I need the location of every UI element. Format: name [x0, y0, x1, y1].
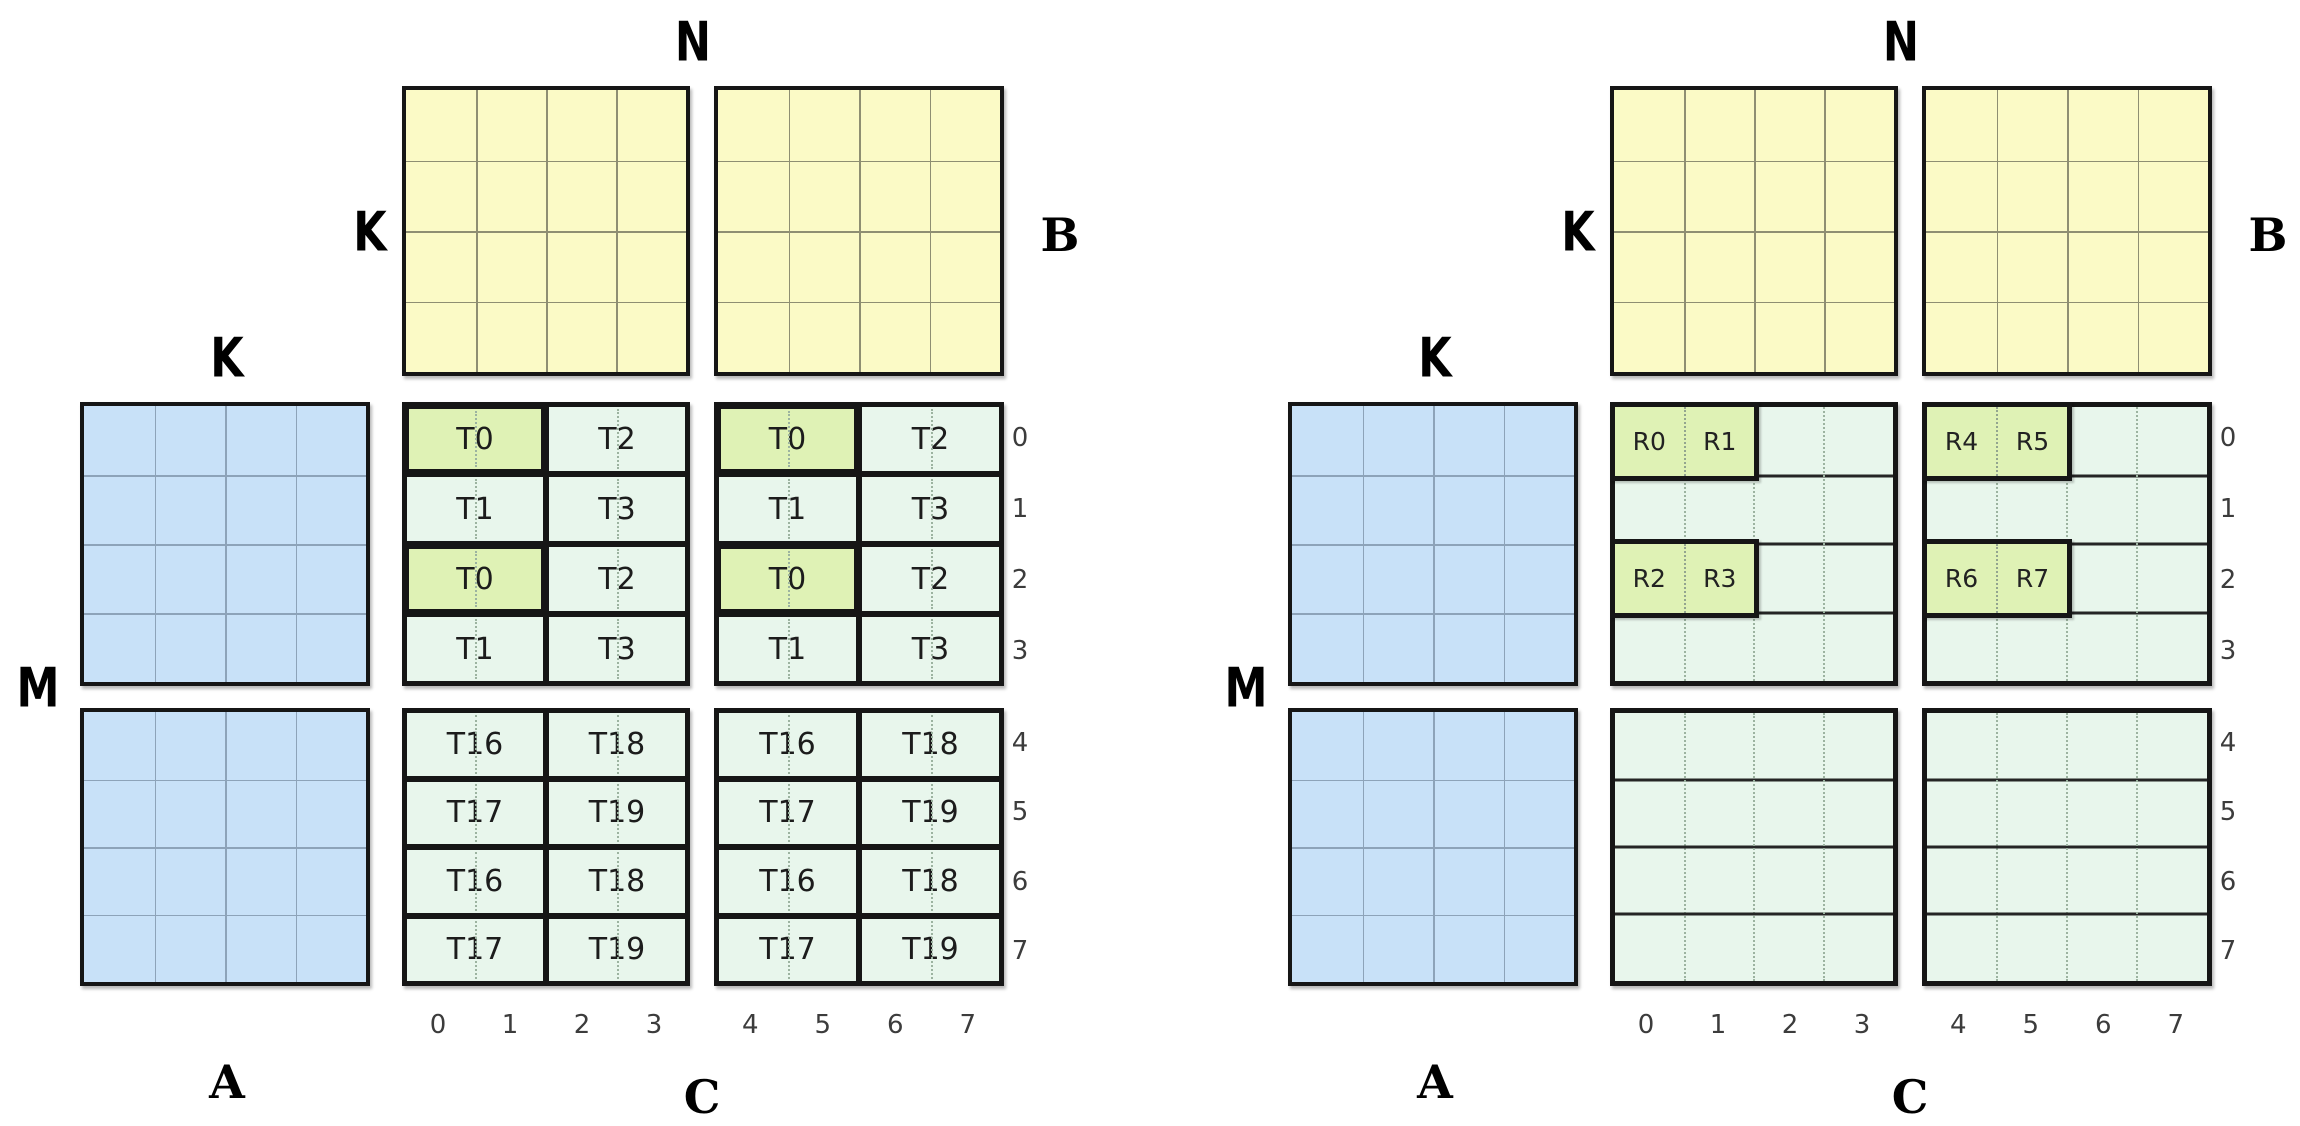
register-label: R1: [1686, 407, 1755, 476]
matrix-c-block: [1610, 708, 1898, 986]
tile-label: T1: [769, 492, 806, 527]
column-dotted-line: [1823, 407, 1825, 681]
row-index-label: 5: [2220, 797, 2237, 827]
row-index-label: 3: [2220, 636, 2237, 666]
tile-cell: T3: [859, 614, 1002, 684]
figure-thread-tiling: N K B K M A C T0T2T1T3T0T2T1T3T16T18T17T…: [0, 0, 1150, 1126]
register-box: R4R5: [1922, 402, 2072, 481]
dim-label-k-of-b: K: [1561, 201, 1594, 264]
dim-label-m: M: [1225, 657, 1268, 720]
matrix-label-a: A: [1417, 1055, 1453, 1109]
register-box: R0R1: [1610, 402, 1759, 481]
matrix-c-block: T16T18T17T19T16T18T17T19: [714, 708, 1004, 986]
column-dotted-line: [2136, 407, 2138, 681]
tile-label: T18: [902, 864, 959, 899]
tile-label: T18: [902, 727, 959, 762]
tile-label: T17: [447, 932, 504, 967]
row-index-label: 6: [1012, 867, 1029, 897]
tile-cell: T17: [404, 916, 546, 985]
col-index-label: 6: [887, 1010, 904, 1040]
matrix-label-c: C: [1892, 1070, 1929, 1124]
register-label: R2: [1615, 544, 1686, 613]
tile-cell: T19: [546, 916, 688, 985]
tile-label: T19: [589, 795, 646, 830]
tile-label: T19: [902, 795, 959, 830]
tile-cell: T18: [546, 710, 688, 779]
grid-line: [1292, 544, 1574, 546]
grid-line: [84, 613, 366, 615]
row-separator-line: [1927, 913, 2207, 916]
col-index-label: 7: [2167, 1010, 2184, 1040]
col-index-label: 1: [1710, 1010, 1727, 1040]
matrix-b-block: [714, 86, 1004, 376]
column-dotted-line: [1753, 713, 1755, 981]
col-index-label: 1: [502, 1010, 519, 1040]
grid-line: [1292, 847, 1574, 849]
row-index-label: 2: [1012, 565, 1029, 595]
grid-line: [1926, 231, 2208, 233]
grid-line: [1824, 90, 1826, 372]
col-index-label: 2: [574, 1010, 591, 1040]
tile-label: T16: [447, 727, 504, 762]
column-dotted-line: [1823, 713, 1825, 981]
tile-cell: T2: [546, 544, 688, 614]
tile-cell: T3: [546, 614, 688, 684]
matrix-c-block: T16T18T17T19T16T18T17T19: [402, 708, 690, 986]
grid-line: [1292, 915, 1574, 917]
row-index-label: 4: [1012, 728, 1029, 758]
tile-label: T2: [912, 562, 949, 597]
grid-line: [406, 231, 686, 233]
register-label: R5: [1998, 407, 2067, 476]
tile-label: T18: [589, 864, 646, 899]
tile-cell: T19: [859, 916, 1002, 985]
tile-cell: T1: [404, 474, 546, 544]
tile-label: T2: [598, 422, 635, 457]
dim-label-n: N: [1883, 11, 1919, 74]
tile-label: T0: [769, 422, 806, 457]
row-index-label: 0: [2220, 423, 2237, 453]
row-index-label: 3: [1012, 636, 1029, 666]
matrix-label-b: B: [2249, 208, 2288, 262]
col-index-label: 4: [742, 1010, 759, 1040]
grid-line: [1504, 712, 1506, 982]
row-index-label: 1: [2220, 494, 2237, 524]
tile-cell: T3: [859, 474, 1002, 544]
row-index-label: 1: [1012, 494, 1029, 524]
col-index-label: 3: [646, 1010, 663, 1040]
col-index-label: 2: [1782, 1010, 1799, 1040]
tile-cell: T18: [546, 847, 688, 916]
tile-cell: T3: [546, 474, 688, 544]
matrix-c-block: R4R5R6R7: [1922, 402, 2212, 686]
tile-cell: T16: [716, 710, 859, 779]
tile-cell: T19: [546, 779, 688, 848]
tile-label: T16: [759, 864, 816, 899]
dim-label-m: M: [17, 657, 60, 720]
tile-label: T16: [759, 727, 816, 762]
highlighted-tile-cell: T0: [716, 544, 859, 614]
col-index-label: 4: [1950, 1010, 1967, 1040]
tile-cell: T1: [716, 474, 859, 544]
matrix-label-a: A: [209, 1055, 245, 1109]
matrix-c-block: T0T2T1T3T0T2T1T3: [714, 402, 1004, 686]
tile-label: T17: [759, 795, 816, 830]
matrix-label-b: B: [1041, 208, 1080, 262]
tile-label: T3: [598, 492, 635, 527]
tile-label: T1: [456, 632, 493, 667]
matrix-a-block: [1288, 402, 1578, 686]
tile-label: T19: [902, 932, 959, 967]
col-index-label: 0: [430, 1010, 447, 1040]
row-separator-line: [1615, 913, 1893, 916]
matrix-a-block: [80, 402, 370, 686]
matrix-b-block: [402, 86, 690, 376]
register-box: R6R7: [1922, 539, 2072, 618]
tile-label: T3: [598, 632, 635, 667]
matrix-a-block: [80, 708, 370, 986]
grid-line: [930, 90, 932, 372]
dim-label-n: N: [675, 11, 711, 74]
register-label: R4: [1927, 407, 1998, 476]
register-label: R6: [1927, 544, 1998, 613]
dim-label-k-of-a: K: [210, 327, 243, 390]
highlighted-tile-cell: T0: [404, 544, 546, 614]
matrix-b-block: [1610, 86, 1898, 376]
tile-label: T1: [769, 632, 806, 667]
grid-line: [718, 302, 1000, 304]
tile-cell: T1: [716, 614, 859, 684]
tile-label: T2: [912, 422, 949, 457]
grid-line: [1504, 406, 1506, 682]
tile-cell: T19: [859, 779, 1002, 848]
dim-label-k-of-a: K: [1418, 327, 1451, 390]
tile-label: T17: [447, 795, 504, 830]
matrix-a-block: [1288, 708, 1578, 986]
col-index-label: 7: [959, 1010, 976, 1040]
grid-line: [406, 302, 686, 304]
tile-label: T3: [912, 492, 949, 527]
grid-line: [296, 712, 298, 982]
tile-cell: T2: [859, 544, 1002, 614]
row-index-label: 2: [2220, 565, 2237, 595]
row-index-label: 7: [2220, 936, 2237, 966]
grid-line: [1926, 302, 2208, 304]
row-index-label: 5: [1012, 797, 1029, 827]
col-index-label: 5: [814, 1010, 831, 1040]
dim-label-k-of-b: K: [353, 201, 386, 264]
matrix-c-block: R0R1R2R3: [1610, 402, 1898, 686]
tile-cell: T17: [404, 779, 546, 848]
tile-cell: T1: [404, 614, 546, 684]
grid-line: [84, 544, 366, 546]
matrix-c-block: T0T2T1T3T0T2T1T3: [402, 402, 690, 686]
grid-line: [84, 847, 366, 849]
row-index-label: 0: [1012, 423, 1029, 453]
tile-label: T2: [598, 562, 635, 597]
grid-line: [84, 915, 366, 917]
matrix-b-block: [1922, 86, 2212, 376]
register-label: R7: [1998, 544, 2067, 613]
highlighted-tile-cell: T0: [404, 404, 546, 474]
register-box: R2R3: [1610, 539, 1759, 618]
highlighted-tile-cell: T0: [716, 404, 859, 474]
matrix-c-block: [1922, 708, 2212, 986]
tile-cell: T17: [716, 916, 859, 985]
grid-line: [1292, 613, 1574, 615]
tile-cell: T2: [859, 404, 1002, 474]
tile-cell: T18: [859, 847, 1002, 916]
tile-label: T16: [447, 864, 504, 899]
col-index-label: 0: [1638, 1010, 1655, 1040]
col-index-label: 5: [2022, 1010, 2039, 1040]
grid-line: [616, 90, 618, 372]
row-index-label: 6: [2220, 867, 2237, 897]
grid-line: [1614, 231, 1894, 233]
grid-line: [2138, 90, 2140, 372]
register-label: R3: [1686, 544, 1755, 613]
tile-label: T1: [456, 492, 493, 527]
tile-label: T0: [456, 562, 493, 597]
tile-cell: T16: [404, 847, 546, 916]
tile-label: T0: [769, 562, 806, 597]
row-index-label: 7: [1012, 936, 1029, 966]
tile-label: T3: [912, 632, 949, 667]
tile-label: T18: [589, 727, 646, 762]
tile-cell: T16: [716, 847, 859, 916]
tile-label: T19: [589, 932, 646, 967]
row-index-label: 4: [2220, 728, 2237, 758]
tile-cell: T16: [404, 710, 546, 779]
grid-line: [1614, 302, 1894, 304]
col-index-label: 3: [1854, 1010, 1871, 1040]
gemm-tiling-diagram: N K B K M A C T0T2T1T3T0T2T1T3T16T18T17T…: [0, 0, 2300, 1126]
matrix-label-c: C: [684, 1070, 721, 1124]
figure-register-tiling: N K B K M A C R0R1R2R3R4R5R6R70123456701…: [1208, 0, 2300, 1126]
grid-line: [296, 406, 298, 682]
tile-label: T0: [456, 422, 493, 457]
column-dotted-line: [2066, 713, 2068, 981]
col-index-label: 6: [2095, 1010, 2112, 1040]
tile-cell: T18: [859, 710, 1002, 779]
tile-cell: T17: [716, 779, 859, 848]
tile-label: T17: [759, 932, 816, 967]
register-label: R0: [1615, 407, 1686, 476]
grid-line: [718, 231, 1000, 233]
column-dotted-line: [2136, 713, 2138, 981]
tile-cell: T2: [546, 404, 688, 474]
